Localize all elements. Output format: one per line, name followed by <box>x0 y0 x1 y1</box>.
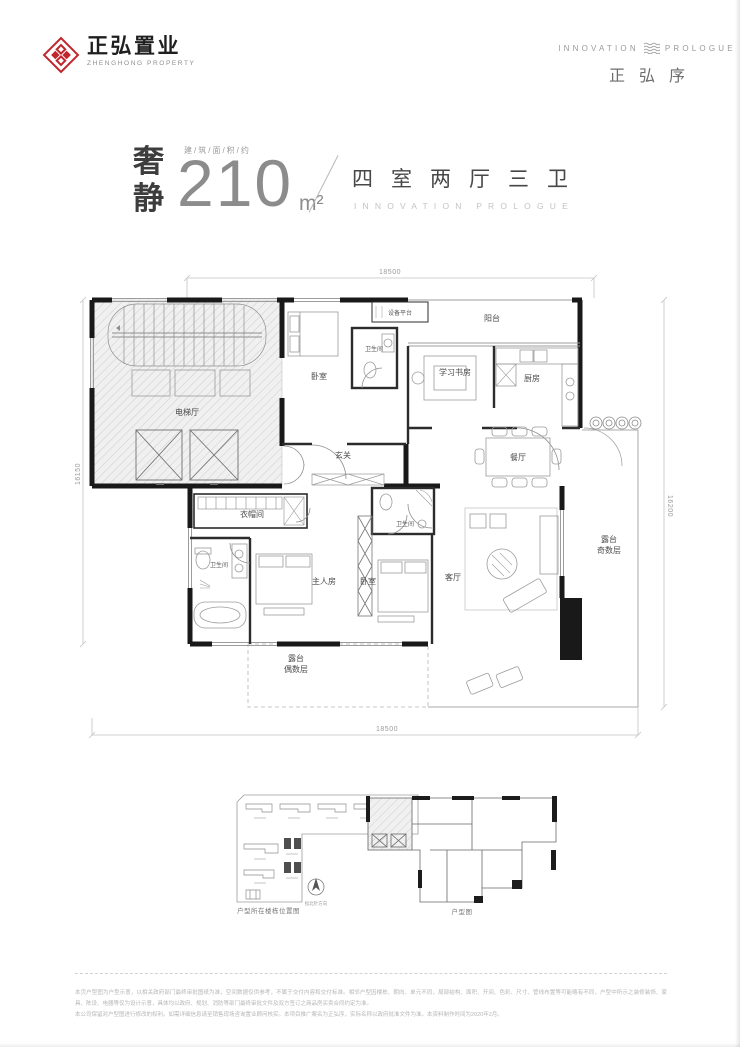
master-bed-icon <box>256 554 312 615</box>
room-label-terrace-odd: 露台 <box>601 534 617 544</box>
project-brand: INNOVATION PROLOGUE 正弘序 <box>582 42 712 86</box>
layout-text-cn: 四室两厅三卫 <box>352 163 586 193</box>
study-desk-icon <box>412 356 476 400</box>
tagline-char-1: 奢 <box>133 143 164 180</box>
site-buildings <box>244 804 378 899</box>
room-label-kitchen: 厨房 <box>524 373 540 383</box>
room-label-bath-master: 卫生间 <box>210 561 228 569</box>
bed-north-icon <box>288 312 338 356</box>
brand-en-right: PROLOGUE <box>665 44 736 53</box>
dim-left: 16150 <box>75 463 82 485</box>
room-label-terrace-odd: 奇数层 <box>597 545 621 555</box>
logo: 正弘置业 ZHENGHONG PROPERTY <box>42 36 196 74</box>
room-label-bath-north: 卫生间 <box>365 345 383 353</box>
disclaimer-line-2: 本公司保留对户型图进行修改的权利。如需详细信息请至销售现场咨询置业顾问核实。本项… <box>75 1010 667 1021</box>
bath-north-fixtures <box>364 334 394 378</box>
living-furniture <box>465 508 558 613</box>
mini-floor-plan <box>362 792 562 912</box>
room-label-bedroom-north: 卧室 <box>311 371 327 381</box>
kitchen-fixtures <box>496 348 578 426</box>
room-label-cloak-room: 衣帽间 <box>240 509 264 519</box>
layout-text-en: INNOVATION PROLOGUE <box>354 201 574 211</box>
foyer-cabinet-icon <box>312 474 384 485</box>
dim-top: 18500 <box>379 269 401 276</box>
room-label-master-bedroom: 主人房 <box>312 576 336 586</box>
room-label-living: 客厅 <box>445 572 461 582</box>
brochure-page: 正弘置业 ZHENGHONG PROPERTY INNOVATION PROLO… <box>0 0 740 1047</box>
master-bath-fixtures <box>194 544 247 628</box>
dim-right: 16200 <box>666 495 673 517</box>
room-label-equip-platform: 设备平台 <box>388 309 412 317</box>
tagline: 奢 静 <box>133 143 164 217</box>
room-label-bath-south: 卫生间 <box>396 520 414 528</box>
room-label-study: 学习书房 <box>439 367 471 377</box>
loungers-icon <box>466 661 523 699</box>
mini-plan-caption: 户型图 <box>362 906 562 916</box>
logo-cn-text: 正弘置业 <box>87 36 196 58</box>
tagline-char-2: 静 <box>133 180 164 217</box>
logo-en-text: ZHENGHONG PROPERTY <box>87 60 196 67</box>
waves-icon <box>644 42 660 54</box>
room-label-bedroom-south: 卧室 <box>360 576 376 586</box>
logo-diamond-icon <box>42 36 80 74</box>
wall-block <box>560 598 582 660</box>
room-label-dining: 餐厅 <box>510 453 526 462</box>
slash-divider <box>309 155 339 212</box>
bed-south-icon <box>378 560 428 622</box>
room-label-terrace-even: 偶数层 <box>284 664 308 674</box>
floor-plan: 18500 18500 16150 16200 <box>72 258 677 750</box>
project-brand-en: INNOVATION PROLOGUE <box>558 42 736 54</box>
room-label-elevator-hall: 电梯厅 <box>175 407 199 417</box>
disclaimer: 本页户型图为户型示意，以相关政府部门最终审批图纸为准，空间数据仅供参考，不属于交… <box>75 988 667 1021</box>
compass-label: 指北针方向 <box>305 900 328 907</box>
brand-en-left: INNOVATION <box>558 44 639 53</box>
equip-platform-ticks <box>376 306 382 318</box>
elevator-lobby-area <box>92 300 282 486</box>
disclaimer-line-1: 本页户型图为户型示意，以相关政府部门最终审批图纸为准，空间数据仅供参考，不属于交… <box>75 988 667 1010</box>
site-caption: 户型所在楼栋位置图 <box>237 905 300 915</box>
room-label-foyer: 玄关 <box>335 450 351 460</box>
area-value: 210 <box>177 150 293 216</box>
room-label-balcony: 阳台 <box>484 313 500 323</box>
footer-divider <box>75 973 667 974</box>
dim-bottom: 18500 <box>376 726 398 733</box>
project-brand-cn: 正弘序 <box>595 62 699 86</box>
wardrobe-partition <box>358 516 372 616</box>
room-label-terrace-even: 露台 <box>288 653 304 663</box>
terrace-stools-icon <box>590 417 641 429</box>
compass-icon <box>308 878 324 895</box>
